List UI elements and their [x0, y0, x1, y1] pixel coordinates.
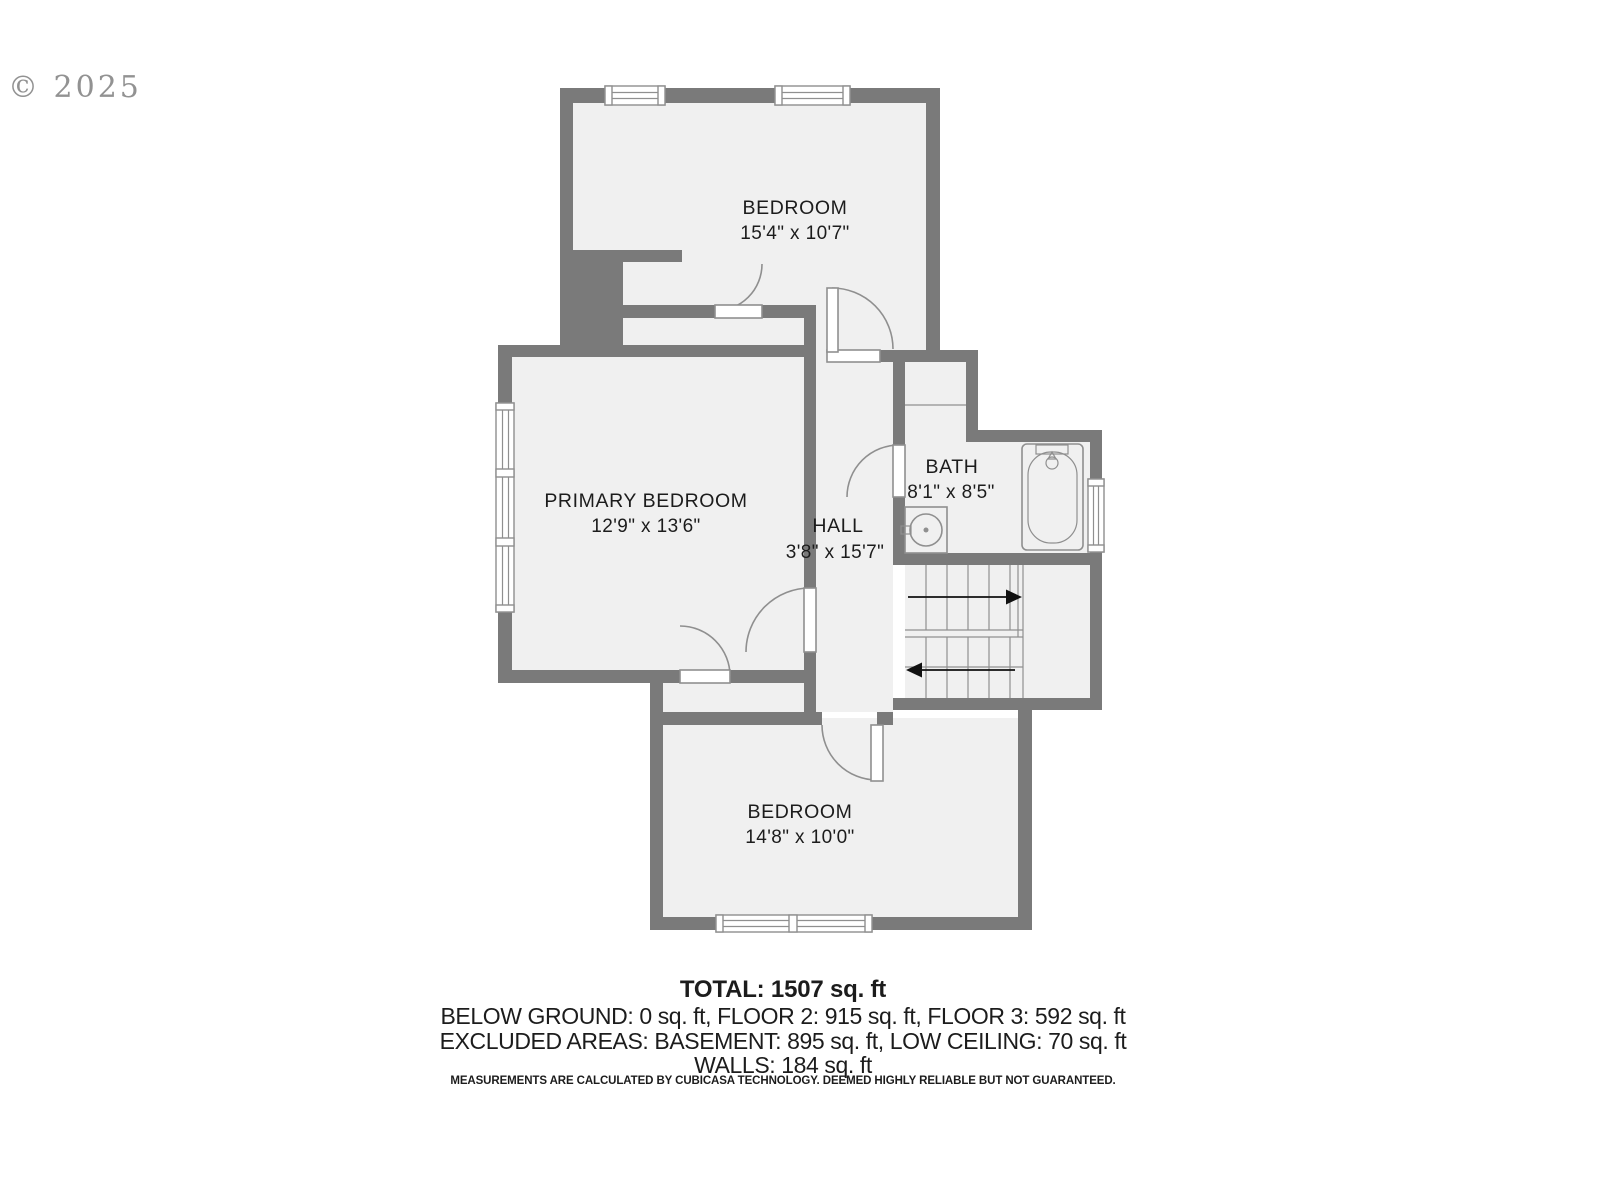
primary-bedroom-floor — [512, 357, 804, 670]
window-icon — [1088, 479, 1104, 552]
floor-areas-text: BELOW GROUND: 0 sq. ft, FLOOR 2: 915 sq.… — [0, 1003, 1566, 1030]
room-dims: 3'8" x 15'7" — [786, 542, 884, 563]
room-label: HALL — [812, 515, 863, 537]
stairwell-floor — [905, 565, 1090, 698]
disclaimer-text: MEASUREMENTS ARE CALCULATED BY CUBICASA … — [0, 1075, 1566, 1087]
window-icon — [496, 403, 514, 612]
room-label: BEDROOM — [743, 197, 848, 219]
total-area-text: TOTAL: 1507 sq. ft — [0, 976, 1566, 1004]
window-icon — [775, 86, 850, 105]
room-label: BEDROOM — [748, 801, 853, 823]
room-dims: 8'1" x 8'5" — [907, 482, 994, 503]
bath-alcove-floor — [905, 362, 966, 442]
window-icon — [605, 86, 665, 105]
excluded-areas-text: EXCLUDED AREAS: BASEMENT: 895 sq. ft, LO… — [0, 1028, 1566, 1055]
room-dims: 15'4" x 10'7" — [740, 223, 849, 244]
room-dims: 12'9" x 13'6" — [591, 516, 700, 537]
room-label: BATH — [926, 456, 979, 478]
room-label: PRIMARY BEDROOM — [544, 490, 747, 512]
room-dims: 14'8" x 10'0" — [745, 827, 854, 848]
copyright-watermark: © 2025 — [8, 70, 142, 105]
window-icon — [716, 915, 872, 932]
